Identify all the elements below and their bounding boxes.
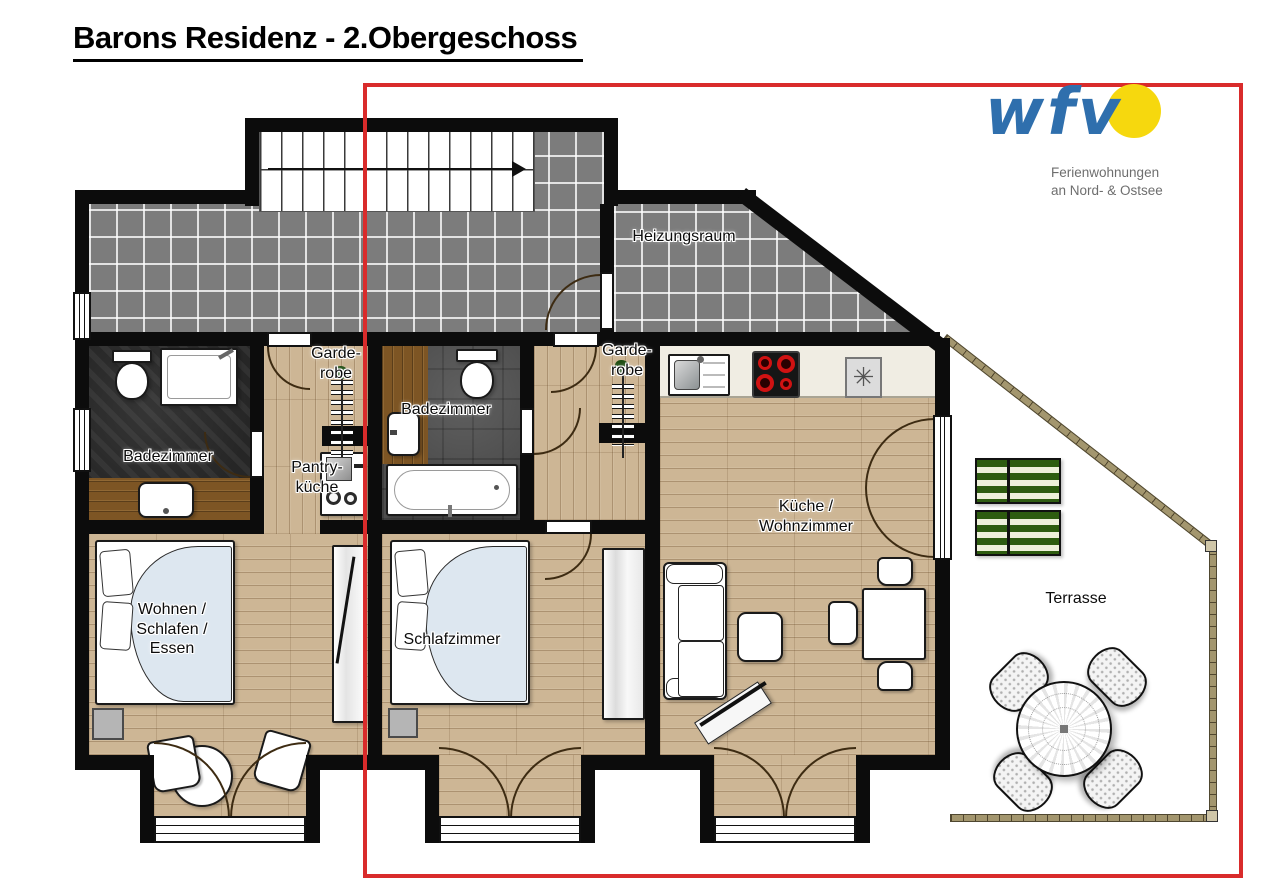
burner-icon xyxy=(344,492,357,505)
apartment-highlight-box xyxy=(363,83,1243,878)
bay1-window xyxy=(154,816,306,843)
coat-rack-pole xyxy=(341,368,343,470)
floorplan-page: Barons Residenz - 2.Obergeschoss wfv Fer… xyxy=(0,0,1276,882)
window xyxy=(73,408,91,472)
room-label-badezimmer-left: Badezimmer xyxy=(123,447,213,467)
pantry-faucet-icon xyxy=(354,464,363,468)
door-leaf xyxy=(250,430,264,478)
wall xyxy=(250,346,264,432)
room-label-pantrykueche: Pantry- küche xyxy=(291,458,343,497)
bay-wall xyxy=(306,755,320,843)
wall xyxy=(75,190,259,204)
bay-wall xyxy=(140,755,154,843)
pillow xyxy=(99,549,134,598)
room-label-wohnen-schlafen-essen: Wohnen / Schlafen / Essen xyxy=(136,600,207,659)
logo-tagline: Ferienwohnungen an Nord- & Ostsee xyxy=(1051,164,1163,200)
wall xyxy=(89,520,264,534)
pillow xyxy=(99,601,133,651)
faucet-icon xyxy=(163,508,169,514)
wall xyxy=(75,190,89,770)
toilet-icon xyxy=(115,362,149,400)
wall xyxy=(75,332,267,346)
nightstand xyxy=(92,708,124,740)
room-label-garderobe-left: Garde- robe xyxy=(311,344,361,383)
logo-text: wfv xyxy=(985,76,1123,150)
page-title: Barons Residenz - 2.Obergeschoss xyxy=(73,20,583,62)
wall xyxy=(320,520,368,534)
door-leaf xyxy=(267,332,312,347)
window xyxy=(73,292,91,340)
wfv-logo: wfv Ferienwohnungen an Nord- & Ostsee xyxy=(985,92,1185,202)
